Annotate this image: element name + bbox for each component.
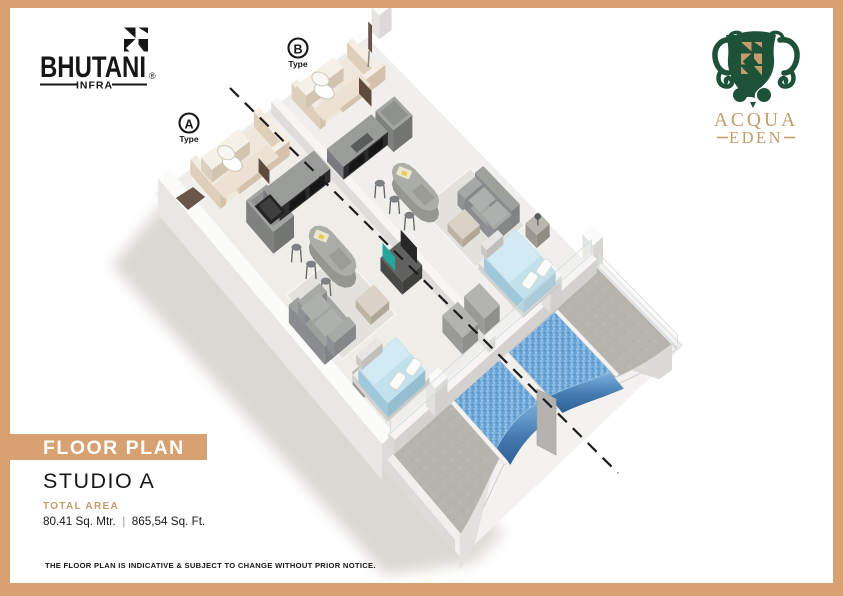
svg-text:Type: Type: [288, 59, 307, 69]
svg-text:Type: Type: [179, 134, 198, 144]
svg-text:INFRA: INFRA: [76, 80, 113, 92]
svg-text:EDEN: EDEN: [729, 128, 783, 147]
svg-text:A: A: [184, 118, 193, 132]
svg-text:®: ®: [149, 71, 156, 81]
svg-text:B: B: [293, 43, 302, 57]
